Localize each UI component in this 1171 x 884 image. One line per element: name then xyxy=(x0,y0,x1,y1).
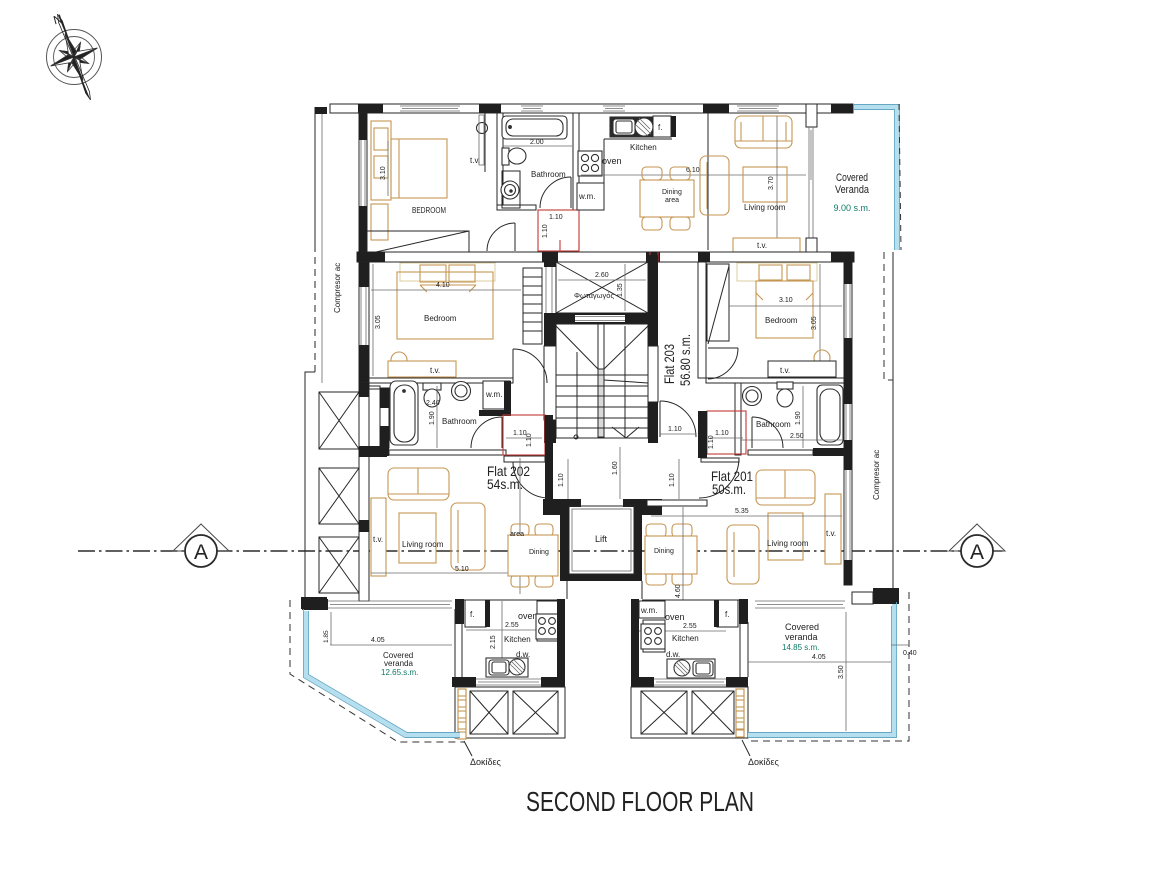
svg-text:12.65.s.m.: 12.65.s.m. xyxy=(381,668,418,677)
svg-text:1.35: 1.35 xyxy=(617,283,624,297)
svg-text:Covered: Covered xyxy=(836,172,868,184)
svg-text:t.v.: t.v. xyxy=(430,366,440,375)
svg-text:1.10: 1.10 xyxy=(558,473,565,487)
svg-text:1.90: 1.90 xyxy=(429,411,436,425)
svg-text:2.55: 2.55 xyxy=(683,623,697,630)
svg-text:3.10: 3.10 xyxy=(779,297,793,304)
svg-text:50s.m.: 50s.m. xyxy=(712,481,746,497)
svg-text:oven: oven xyxy=(665,612,685,622)
svg-text:4.10: 4.10 xyxy=(436,282,450,289)
svg-text:w.m.: w.m. xyxy=(578,192,595,201)
svg-text:t.v.: t.v. xyxy=(826,529,836,538)
svg-text:1.90: 1.90 xyxy=(795,411,802,425)
svg-text:oven: oven xyxy=(602,156,622,166)
svg-text:Kitchen: Kitchen xyxy=(630,143,657,152)
svg-text:Veranda: Veranda xyxy=(835,184,870,196)
svg-text:A: A xyxy=(970,541,984,564)
svg-text:14.85 s.m.: 14.85 s.m. xyxy=(782,643,819,652)
svg-text:Φωταγωγός: Φωταγωγός xyxy=(574,291,614,300)
svg-text:Kitchen: Kitchen xyxy=(672,634,699,643)
svg-text:w.m.: w.m. xyxy=(640,606,657,615)
svg-text:1.10: 1.10 xyxy=(708,435,715,449)
svg-text:3.50: 3.50 xyxy=(838,665,845,679)
svg-text:f.: f. xyxy=(470,610,474,619)
svg-text:0.40: 0.40 xyxy=(903,650,917,657)
svg-text:3.05: 3.05 xyxy=(811,316,818,330)
svg-text:Δοκίδες: Δοκίδες xyxy=(470,757,502,767)
svg-text:5.10: 5.10 xyxy=(455,566,469,573)
svg-text:Dining: Dining xyxy=(654,548,674,555)
svg-text:w.m.: w.m. xyxy=(485,390,502,399)
svg-text:veranda: veranda xyxy=(785,632,818,642)
svg-text:2.50: 2.50 xyxy=(790,433,804,440)
svg-text:A: A xyxy=(194,541,208,564)
svg-text:4.60: 4.60 xyxy=(675,584,682,598)
svg-text:Living room: Living room xyxy=(402,540,444,549)
svg-text:54s.m.: 54s.m. xyxy=(487,476,523,492)
svg-text:Lift: Lift xyxy=(595,534,608,544)
svg-text:f.: f. xyxy=(725,610,729,619)
svg-text:Bathroom: Bathroom xyxy=(756,420,791,429)
svg-text:Δοκίδες: Δοκίδες xyxy=(748,757,780,767)
svg-text:1.10: 1.10 xyxy=(549,214,563,221)
svg-text:Bedroom: Bedroom xyxy=(424,314,457,323)
svg-text:Bedroom: Bedroom xyxy=(765,316,798,325)
svg-text:2.15: 2.15 xyxy=(490,635,497,649)
svg-text:1.10: 1.10 xyxy=(513,430,527,437)
svg-text:Bathroom: Bathroom xyxy=(531,170,566,179)
svg-text:6.10: 6.10 xyxy=(686,167,700,174)
svg-text:Dining: Dining xyxy=(662,189,682,196)
svg-text:t.v.: t.v. xyxy=(470,156,480,165)
svg-text:1.60: 1.60 xyxy=(612,461,619,475)
svg-text:Compresor ac: Compresor ac xyxy=(872,450,881,500)
svg-text:2.55: 2.55 xyxy=(505,622,519,629)
svg-text:Flat 203: Flat 203 xyxy=(661,344,677,384)
svg-text:Compresor ac: Compresor ac xyxy=(333,263,342,313)
svg-text:1.10: 1.10 xyxy=(668,426,682,433)
svg-text:Dining: Dining xyxy=(529,549,549,556)
svg-text:oven: oven xyxy=(518,611,538,621)
svg-text:SECOND FLOOR PLAN: SECOND FLOOR PLAN xyxy=(526,786,754,817)
svg-text:Covered: Covered xyxy=(785,622,819,632)
svg-text:t.v.: t.v. xyxy=(780,366,790,375)
svg-text:Living room: Living room xyxy=(744,203,786,212)
svg-text:Kitchen: Kitchen xyxy=(504,635,531,644)
svg-text:Living room: Living room xyxy=(767,539,809,548)
svg-text:area: area xyxy=(510,531,524,538)
svg-text:5.35: 5.35 xyxy=(735,508,749,515)
svg-text:1.10: 1.10 xyxy=(715,430,729,437)
svg-text:1.85: 1.85 xyxy=(323,630,330,643)
svg-text:t.v.: t.v. xyxy=(757,241,767,250)
svg-text:4.05: 4.05 xyxy=(812,654,826,661)
svg-text:area: area xyxy=(665,197,679,204)
svg-text:Bathroom: Bathroom xyxy=(442,417,477,426)
svg-text:3.70: 3.70 xyxy=(768,176,775,190)
svg-text:9.00 s.m.: 9.00 s.m. xyxy=(833,203,870,213)
svg-text:BEDROOM: BEDROOM xyxy=(412,206,446,215)
svg-text:4.05: 4.05 xyxy=(371,637,385,644)
svg-text:2.00: 2.00 xyxy=(530,139,544,146)
svg-text:2.60: 2.60 xyxy=(595,272,609,279)
svg-text:1.10: 1.10 xyxy=(542,224,549,238)
svg-text:56.80 s.m.: 56.80 s.m. xyxy=(677,334,693,386)
svg-text:3.05: 3.05 xyxy=(375,315,382,329)
svg-text:f.: f. xyxy=(658,123,662,132)
svg-text:d.w.: d.w. xyxy=(666,650,680,659)
svg-text:1.10: 1.10 xyxy=(526,433,533,447)
svg-text:veranda: veranda xyxy=(384,659,413,668)
svg-text:2.40: 2.40 xyxy=(426,400,440,407)
svg-text:1.10: 1.10 xyxy=(669,473,676,487)
svg-text:3.10: 3.10 xyxy=(380,166,387,180)
svg-text:t.v.: t.v. xyxy=(373,535,383,544)
